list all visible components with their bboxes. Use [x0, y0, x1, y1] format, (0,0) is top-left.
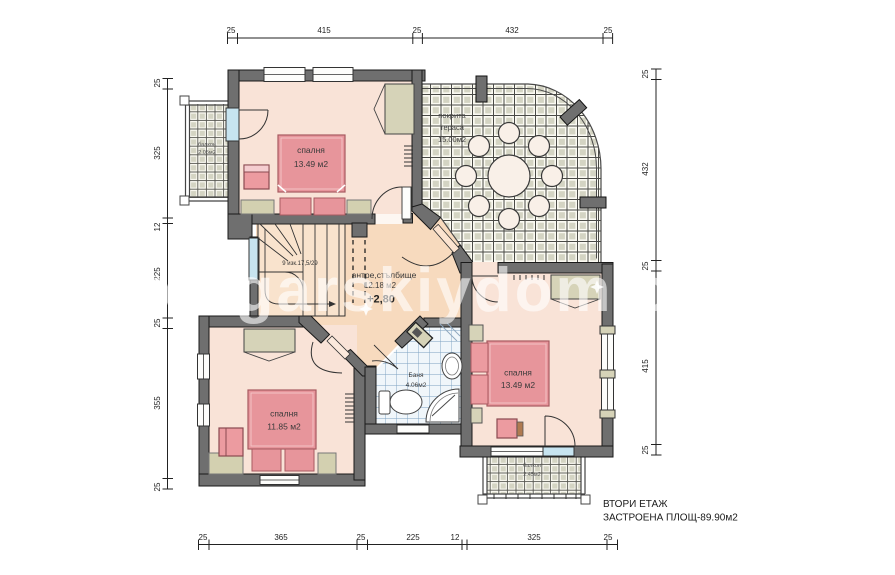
svg-text:4.06м2: 4.06м2 — [406, 382, 427, 389]
svg-text:25: 25 — [413, 26, 422, 35]
svg-text:25: 25 — [153, 482, 162, 491]
svg-text:25: 25 — [357, 533, 366, 542]
svg-text:25: 25 — [604, 26, 613, 35]
svg-text:432: 432 — [505, 26, 519, 35]
svg-text:25: 25 — [641, 445, 650, 454]
svg-text:2.05м2: 2.05м2 — [198, 150, 216, 156]
svg-text:325: 325 — [153, 146, 162, 160]
svg-text:225: 225 — [406, 533, 420, 542]
svg-text:ВТОРИ ЕТАЖ: ВТОРИ ЕТАЖ — [603, 499, 668, 510]
svg-text:25: 25 — [199, 533, 208, 542]
svg-text:12: 12 — [451, 533, 460, 542]
svg-text:покрита: покрита — [438, 111, 466, 120]
svg-text:11.85 м2: 11.85 м2 — [267, 422, 301, 432]
svg-text:спалня: спалня — [297, 145, 325, 155]
svg-text:спалня: спалня — [504, 368, 532, 378]
svg-text:13.49 м2: 13.49 м2 — [294, 159, 328, 169]
svg-text:25: 25 — [153, 78, 162, 87]
svg-text:25: 25 — [604, 533, 613, 542]
svg-text:415: 415 — [317, 26, 331, 35]
svg-text:ЗАСТРОЕНА ПЛОЩ-89.90м2: ЗАСТРОЕНА ПЛОЩ-89.90м2 — [603, 513, 738, 524]
svg-text:13.49 м2: 13.49 м2 — [501, 380, 535, 390]
svg-text:25: 25 — [641, 69, 650, 78]
svg-text:2.45м2: 2.45м2 — [523, 472, 541, 478]
svg-text:балкон: балкон — [198, 142, 216, 148]
svg-text:325: 325 — [527, 533, 541, 542]
svg-text:25: 25 — [227, 26, 236, 35]
svg-text:432: 432 — [641, 162, 650, 176]
svg-text:15.00м2: 15.00м2 — [438, 135, 466, 144]
svg-text:балкон: балкон — [523, 463, 541, 469]
svg-text:спалня: спалня — [270, 409, 298, 419]
svg-text:bulgarskiydom.com: bulgarskiydom.com — [134, 256, 771, 325]
svg-text:Баня: Баня — [409, 372, 424, 379]
svg-text:12: 12 — [153, 222, 162, 231]
svg-text:365: 365 — [274, 533, 288, 542]
svg-text:355: 355 — [153, 396, 162, 410]
svg-text:тераса: тераса — [440, 123, 465, 132]
svg-text:415: 415 — [641, 359, 650, 373]
